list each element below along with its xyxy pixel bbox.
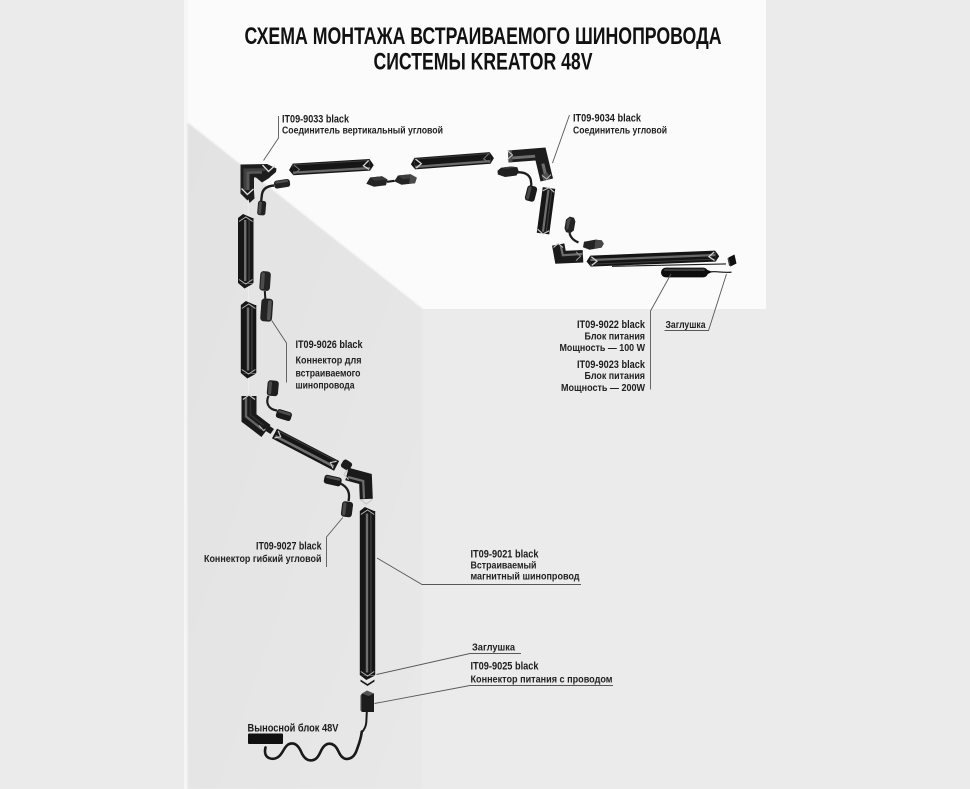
svg-text:встраиваемого: встраиваемого [296,369,361,380]
svg-text:Коннектор питания с проводом: Коннектор питания с проводом [471,675,613,686]
svg-text:IT09-9026 black: IT09-9026 black [296,339,363,351]
svg-text:IT09-9033 black: IT09-9033 black [282,114,349,126]
svg-text:магнитный шинопровод: магнитный шинопровод [471,572,580,583]
svg-text:шинопровода: шинопровода [296,381,355,392]
svg-text:Блок питания: Блок питания [585,371,646,382]
svg-text:Коннектор для: Коннектор для [296,356,362,367]
svg-text:Заглушка: Заглушка [666,320,706,331]
svg-text:IT09-9022 black: IT09-9022 black [577,319,645,331]
svg-text:IT09-9023 black: IT09-9023 black [577,359,645,371]
svg-text:Коннектор гибкий угловой: Коннектор гибкий угловой [204,553,322,565]
svg-text:IT09-9021 black: IT09-9021 black [471,549,539,561]
svg-text:Соединитель вертикальный углов: Соединитель вертикальный угловой [282,126,443,137]
svg-text:СИСТЕМЫ KREATOR 48V: СИСТЕМЫ KREATOR 48V [374,50,593,76]
svg-text:Встраиваемый: Встраиваемый [471,561,537,572]
svg-text:IT09-9034 black: IT09-9034 black [573,113,641,125]
svg-text:Соединитель угловой: Соединитель угловой [573,126,667,137]
svg-text:СХЕМА МОНТАЖА ВСТРАИВАЕМОГО ШИ: СХЕМА МОНТАЖА ВСТРАИВАЕМОГО ШИНОПРОВОДА [245,24,722,50]
svg-text:Мощность — 100 W: Мощность — 100 W [560,343,646,354]
svg-text:Мощность — 200W: Мощность — 200W [561,383,645,394]
svg-text:IT09-9027 black: IT09-9027 black [256,541,322,553]
svg-text:IT09-9025 black: IT09-9025 black [471,661,539,673]
svg-text:Блок питания: Блок питания [585,332,646,343]
svg-text:Заглушка: Заглушка [472,643,515,654]
svg-text:Выносной блок 48V: Выносной блок 48V [248,723,339,735]
